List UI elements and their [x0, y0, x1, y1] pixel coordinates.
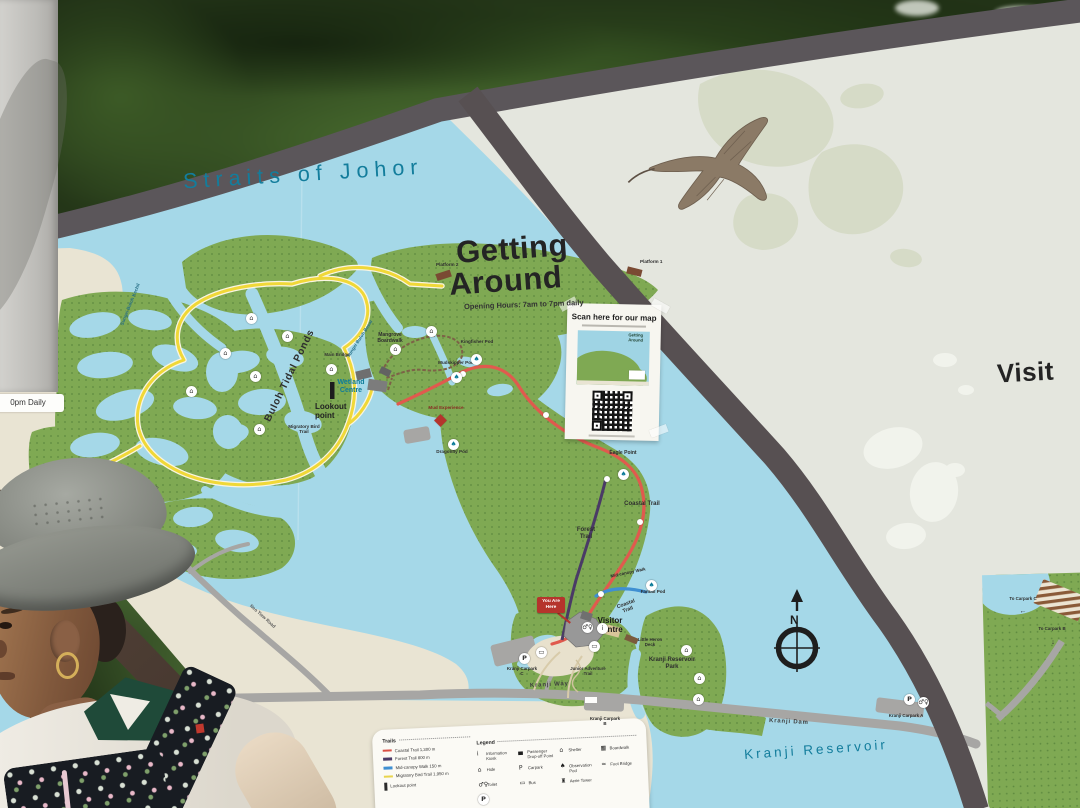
minimap-legend-box [629, 370, 645, 379]
trail-junction-dot [604, 476, 610, 482]
hide-icon: ⌂ [71, 474, 82, 485]
shelter-icon: ⌂ [694, 673, 705, 684]
label-coastal-trail-upper: Coastal Trail [624, 501, 660, 508]
trail-legend-row: Mid-canopy Walk 150 m [383, 762, 471, 771]
aerie-tower-icon: ♜ [561, 778, 570, 784]
label-kranji-reservoir-park: Kranji Reservoir Park [648, 657, 696, 671]
label-lookout-point: Lookout point [315, 402, 357, 421]
toilet-icon: ♂♀ [582, 622, 593, 633]
label-eagle-point: Eagle Point [606, 451, 640, 457]
bus-stop-icon: ▭ [536, 647, 547, 658]
trail-label: Forest Trail 800 m [395, 755, 430, 762]
label-to-carpark-c: To Carpark C [1003, 596, 1043, 601]
label-platform-1: Platform 1 [640, 259, 662, 264]
label-to-carpark-b: To Carpark B [1032, 626, 1072, 631]
label-mangrove-boardwalk: Mangrove Boardwalk [368, 333, 412, 345]
info-kiosk-icon: i [597, 623, 608, 634]
label-kranji-carpark-c: Kranji Carpark C [506, 666, 538, 676]
legend-item: ▄Passenger Drop-off Point [518, 748, 555, 760]
hide-icon: ⌂ [220, 348, 231, 359]
map-legend-panel: Trails Coastal Trail 1,300 m Forest Trai… [372, 718, 650, 808]
trail-label: Mid-canopy Walk 150 m [395, 763, 441, 770]
trail-junction-dot [543, 412, 549, 418]
poster-title: Scan here for our map [567, 312, 661, 323]
hide-icon: ⌂ [326, 364, 337, 375]
scan-map-poster: Scan here for our map Getting Around [565, 303, 662, 441]
coastal-trail-swatch [383, 749, 392, 752]
arrow-left-icon: ← [1016, 608, 1030, 616]
carpark-icon: P [519, 653, 530, 664]
label-kranji-carpark-b: Kranji Carpark B [589, 716, 621, 726]
mudskipper-pod-icon: ♠ [451, 372, 462, 383]
trails-legend: Trails Coastal Trail 1,300 m Forest Trai… [382, 735, 472, 791]
mid-canopy-swatch [383, 766, 392, 769]
migratory-trail-swatch [384, 775, 393, 778]
symbols-legend: Legend iInformation Kiosk ▄Passenger Dro… [476, 733, 638, 788]
label-mud-experience: Mud Experience [424, 405, 468, 410]
hide-icon: ⌂ [246, 313, 257, 324]
hide-icon: ⌂ [254, 424, 265, 435]
poster-minimap: Getting Around [577, 330, 650, 385]
left-edge-hours-label: 0pm Daily [0, 394, 64, 412]
label-forest-trail: Forest Trail [570, 527, 602, 541]
legend-item: ▭Bus [519, 779, 555, 787]
label-kranji-carpark-a: Kranji Carpark A [888, 713, 924, 718]
label-wetland-centre: Wetland Centre [336, 379, 366, 396]
lookout-point-swatch [384, 783, 387, 791]
qr-code [592, 391, 633, 432]
info-kiosk-icon: i [477, 751, 486, 757]
hide-icon: ⌂ [390, 344, 401, 355]
qr-finder-pattern [622, 391, 632, 401]
trail-legend-row: Migratory Bird Trail 1,950 m [384, 770, 472, 779]
label-platform-2: Platform 2 [436, 262, 458, 267]
label-main-bridge: Main Bridge [324, 352, 350, 357]
legend-item: ≃Foot Bridge [601, 760, 638, 772]
arrow-down-icon: ↓ [1046, 639, 1060, 647]
trail-legend-row: Forest Trail 800 m [383, 753, 471, 762]
qr-finder-pattern [592, 421, 602, 431]
legend-item: ♂♀Toilet [478, 781, 514, 789]
eagle-point-pod-icon: ♠ [618, 469, 629, 480]
label-mudskipper-pod: Mudskipper Pod [436, 360, 476, 365]
carpark-icon: P [478, 794, 489, 805]
concrete-pillar [0, 0, 58, 392]
trail-junction-dot [637, 519, 643, 525]
carpark-icon: P [904, 694, 915, 705]
legend-item: ▦Boardwalk [600, 744, 637, 756]
dotted-leader [498, 735, 636, 742]
trail-legend-row: Lookout point [384, 779, 472, 791]
bus-icon: ▭ [519, 780, 528, 786]
toilet-icon: ♂♀ [918, 697, 929, 708]
dotted-leader [399, 736, 470, 740]
legend-title: Legend [476, 740, 495, 747]
legend-item: ⌂Hide [478, 765, 515, 777]
trail-legend-row: Coastal Trail 1,300 m [383, 744, 471, 753]
hide-icon: ⌂ [282, 331, 293, 342]
poster-subtitle-line [582, 324, 646, 327]
lookout-point-marker [330, 382, 335, 399]
trails-title: Trails [382, 738, 396, 745]
forest-trail-swatch [383, 758, 392, 761]
hide-icon: ⌂ [426, 326, 437, 337]
kingfisher-pod-icon: ♠ [471, 354, 482, 365]
label-kingfisher-pod: Kingfisher Pod [457, 339, 497, 344]
legend-grid: iInformation Kiosk ▄Passenger Drop-off P… [477, 744, 639, 788]
trail-junction-dot [598, 591, 604, 597]
adjacent-map-card [982, 572, 1080, 808]
legend-item: ⌂Shelter [559, 746, 596, 758]
hide-icon: ⌂ [478, 767, 487, 773]
hide-icon: ⌂ [250, 371, 261, 382]
label-junior-adventure-trail: Junior Adventure Trail [566, 666, 610, 676]
observation-pod-icon: ♠ [560, 763, 569, 769]
legend-item: ♠Observation Pod [560, 762, 597, 774]
legend-item: iInformation Kiosk [477, 750, 514, 762]
minimap-mainland [577, 380, 650, 386]
legend-item: PCarpark [519, 763, 556, 775]
hide-icon: ⌂ [186, 386, 197, 397]
label-migratory-bird-trail: Migratory Bird Trail [283, 424, 325, 435]
trail-label: Migratory Bird Trail 1,950 m [396, 771, 449, 778]
minimap-title: Getting Around [624, 333, 648, 343]
legend-item: ♜Aerie Tower [561, 777, 597, 785]
fantail-pod-icon: ♠ [646, 580, 657, 591]
shelter-icon: ⌂ [559, 747, 568, 753]
right-panel-title: Visit [996, 356, 1054, 390]
you-are-here-marker: You Are Here [537, 597, 565, 613]
dragonfly-pod-icon: ♠ [448, 439, 459, 450]
trail-label: Lookout point [390, 783, 416, 789]
drop-off-icon: ▄ [518, 749, 527, 755]
poster-caption-line [589, 435, 635, 438]
trail-label: Coastal Trail 1,300 m [395, 746, 436, 753]
shelter-icon: ⌂ [681, 645, 692, 656]
boardwalk-icon: ▦ [600, 746, 609, 752]
toilet-icon: ♂♀ [478, 782, 487, 788]
shelter-icon: ⌂ [693, 694, 704, 705]
carpark-icon: P [519, 765, 528, 771]
foot-bridge-icon: ≃ [601, 761, 610, 767]
bus-stop-icon: ▭ [589, 641, 600, 652]
photo-of-park-map-sign: N Straits of Johor Getting Around Openin… [0, 0, 1080, 808]
qr-finder-pattern [592, 391, 602, 401]
label-little-heron-deck: Little Heron Deck [632, 637, 668, 647]
